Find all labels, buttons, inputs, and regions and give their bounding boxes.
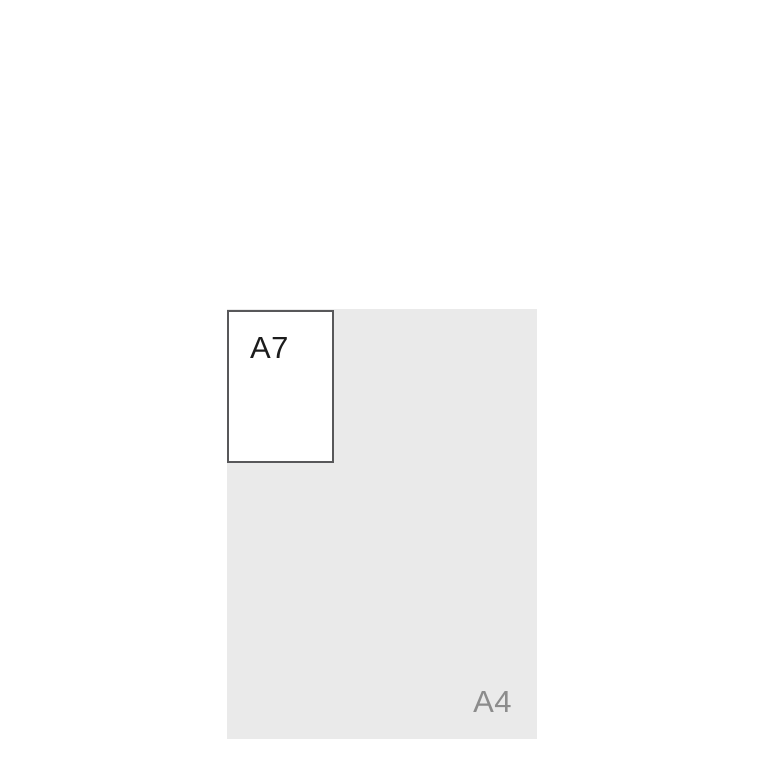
paper-size-diagram: A4 A7 <box>0 0 765 765</box>
a7-label: A7 <box>250 332 289 363</box>
a4-label: A4 <box>473 686 512 717</box>
a7-sheet: A7 <box>227 310 334 463</box>
